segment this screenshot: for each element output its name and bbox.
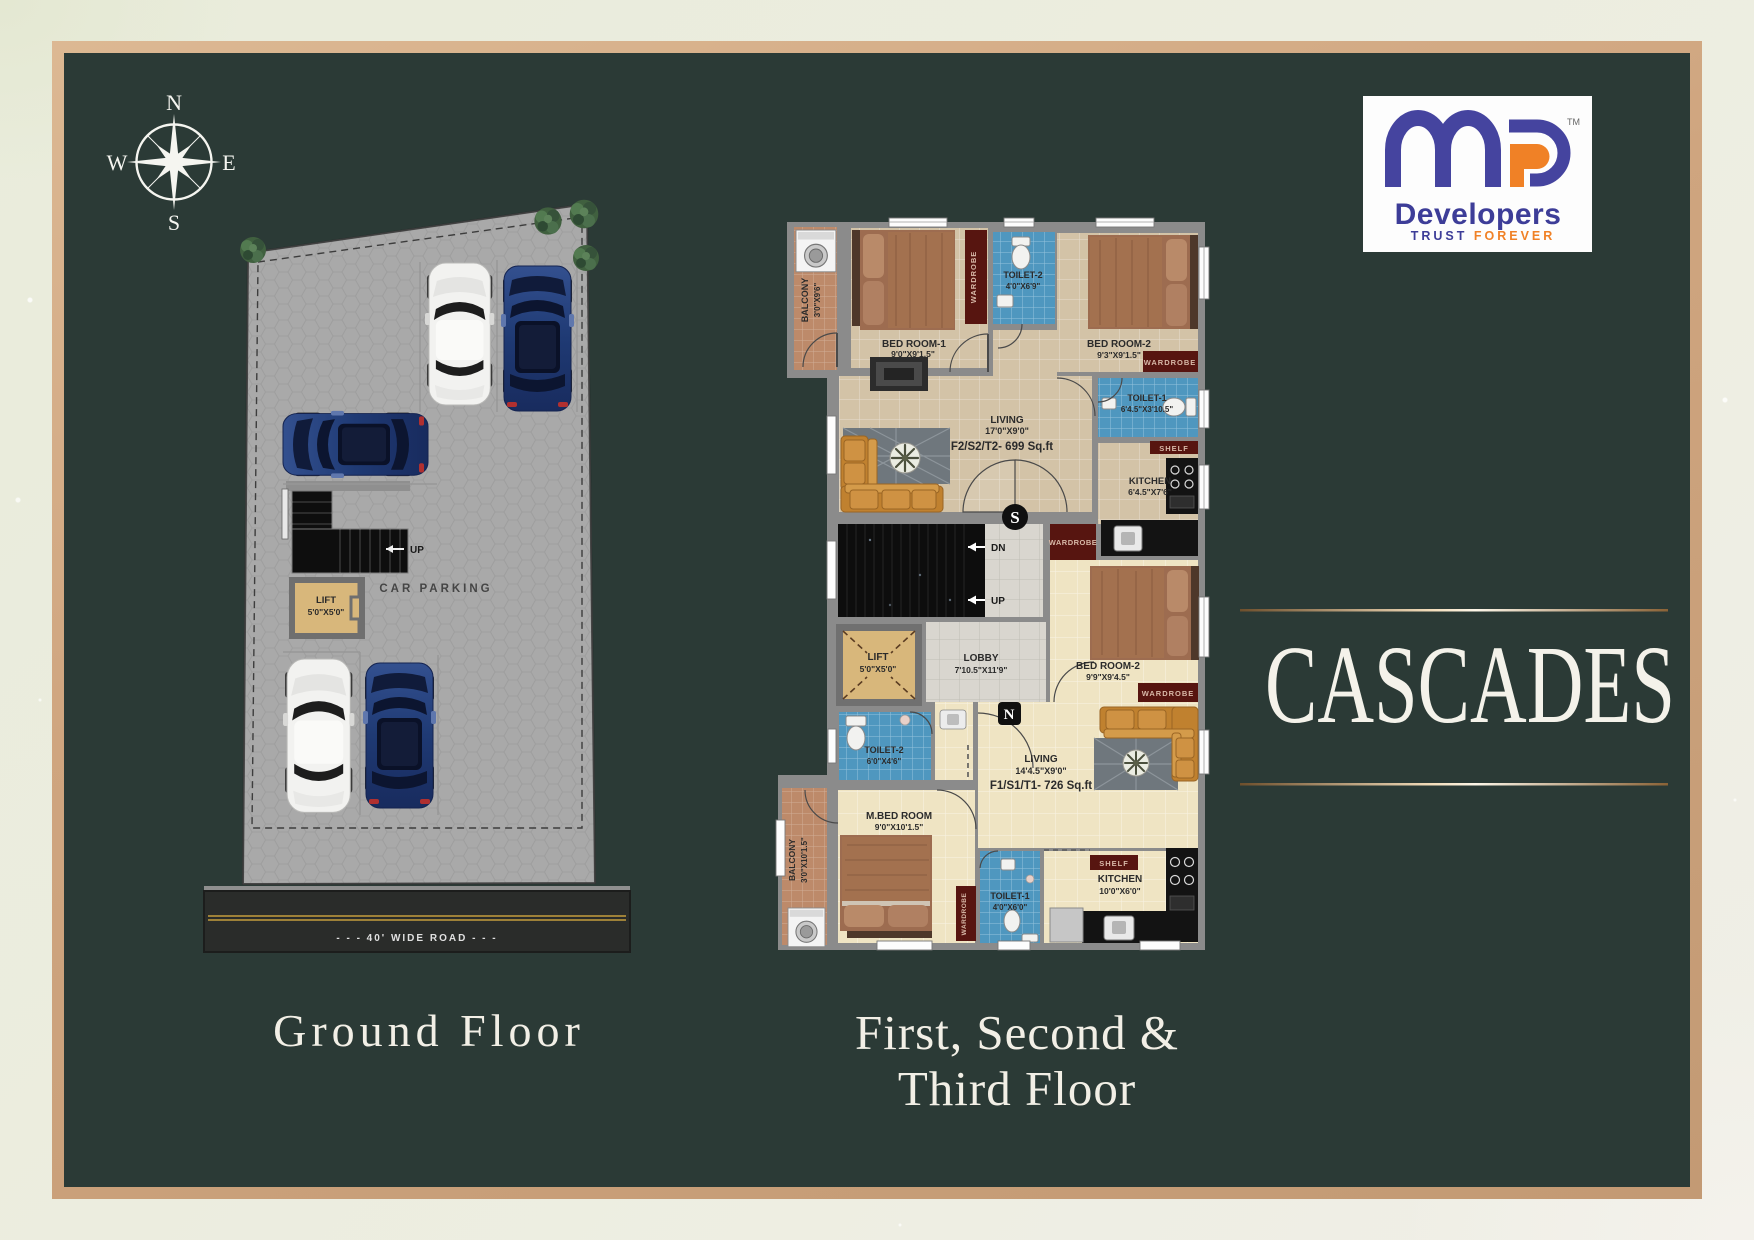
- svg-text:S: S: [1010, 508, 1019, 527]
- svg-text:LIFT: LIFT: [867, 652, 888, 663]
- svg-text:9'3"X9'1.5": 9'3"X9'1.5": [1097, 350, 1141, 360]
- svg-text:DN: DN: [991, 543, 1005, 554]
- svg-text:WARDROBE: WARDROBE: [1144, 358, 1197, 367]
- svg-text:E: E: [222, 150, 235, 175]
- svg-text:UP: UP: [410, 545, 424, 556]
- svg-text:LIFT: LIFT: [316, 595, 336, 606]
- svg-text:6'0"X4'6": 6'0"X4'6": [867, 757, 902, 766]
- svg-text:5'0"X5'0": 5'0"X5'0": [308, 607, 345, 617]
- svg-text:BED ROOM-2: BED ROOM-2: [1076, 661, 1140, 672]
- svg-text:- - - 40' WIDE ROAD - - -: - - - 40' WIDE ROAD - - -: [336, 933, 497, 944]
- svg-text:3'0"X9'6": 3'0"X9'6": [813, 283, 822, 318]
- svg-text:TM: TM: [1567, 117, 1580, 127]
- svg-text:BALCONY: BALCONY: [800, 278, 810, 323]
- svg-text:9'0"X10'1.5": 9'0"X10'1.5": [875, 822, 924, 832]
- svg-text:KITCHEN: KITCHEN: [1129, 476, 1171, 487]
- svg-text:6'4.5"X3'10.5": 6'4.5"X3'10.5": [1121, 405, 1174, 414]
- svg-text:CAR PARKING: CAR PARKING: [379, 583, 492, 595]
- svg-text:UP: UP: [991, 596, 1005, 607]
- svg-text:LIVING: LIVING: [990, 415, 1024, 426]
- svg-text:WARDROBE: WARDROBE: [969, 251, 978, 304]
- svg-text:WARDROBE: WARDROBE: [1049, 538, 1098, 547]
- svg-text:N: N: [166, 90, 182, 115]
- svg-text:F1/S1/T1- 726 Sq.ft: F1/S1/T1- 726 Sq.ft: [990, 780, 1092, 792]
- svg-text:9'0"X9'1.5": 9'0"X9'1.5": [891, 349, 935, 359]
- svg-text:4'0"X6'0": 4'0"X6'0": [993, 903, 1028, 912]
- svg-text:SHELF: SHELF: [1159, 444, 1189, 453]
- svg-text:TOILET-2: TOILET-2: [864, 745, 903, 755]
- svg-text:Developers: Developers: [1395, 198, 1562, 231]
- svg-text:W: W: [107, 150, 128, 175]
- svg-text:10'0"X6'0": 10'0"X6'0": [1099, 886, 1140, 896]
- svg-text:S: S: [168, 210, 180, 235]
- svg-text:SHELF: SHELF: [1099, 859, 1129, 868]
- svg-text:5'0"X5'0": 5'0"X5'0": [860, 664, 897, 674]
- svg-text:9'9"X9'4.5": 9'9"X9'4.5": [1086, 672, 1130, 682]
- svg-text:First, Second &: First, Second &: [855, 1005, 1179, 1060]
- svg-text:TOILET-2: TOILET-2: [1003, 270, 1042, 280]
- svg-text:Ground Floor: Ground Floor: [273, 1005, 585, 1056]
- svg-text:BALCONY: BALCONY: [787, 839, 797, 881]
- svg-text:TOILET-1: TOILET-1: [1127, 393, 1166, 403]
- svg-text:14'4.5"X9'0": 14'4.5"X9'0": [1015, 766, 1066, 776]
- svg-text:M.BED ROOM: M.BED ROOM: [866, 811, 932, 822]
- svg-text:BED ROOM-2: BED ROOM-2: [1087, 339, 1151, 350]
- svg-text:F2/S2/T2- 699 Sq.ft: F2/S2/T2- 699 Sq.ft: [951, 441, 1053, 453]
- svg-text:CASCADES: CASCADES: [1265, 624, 1675, 747]
- svg-text:3'0"X10'1.5": 3'0"X10'1.5": [800, 837, 809, 883]
- svg-text:WARDROBE: WARDROBE: [1142, 689, 1195, 698]
- svg-text:WARDROBE: WARDROBE: [961, 893, 968, 936]
- svg-text:TOILET-1: TOILET-1: [990, 891, 1029, 901]
- svg-text:N: N: [1004, 707, 1015, 723]
- svg-text:17'0"X9'0": 17'0"X9'0": [985, 426, 1029, 436]
- svg-text:Third Floor: Third Floor: [898, 1061, 1136, 1116]
- svg-text:KITCHEN: KITCHEN: [1098, 874, 1142, 885]
- svg-text:LOBBY: LOBBY: [964, 653, 999, 664]
- svg-text:7'10.5"X11'9": 7'10.5"X11'9": [955, 665, 1008, 675]
- svg-text:6'4.5"X7'6": 6'4.5"X7'6": [1128, 487, 1172, 497]
- svg-text:LIVING: LIVING: [1024, 754, 1058, 765]
- svg-text:TRUST FOREVER: TRUST FOREVER: [1411, 229, 1556, 243]
- svg-text:4'0"X6'9": 4'0"X6'9": [1006, 282, 1041, 291]
